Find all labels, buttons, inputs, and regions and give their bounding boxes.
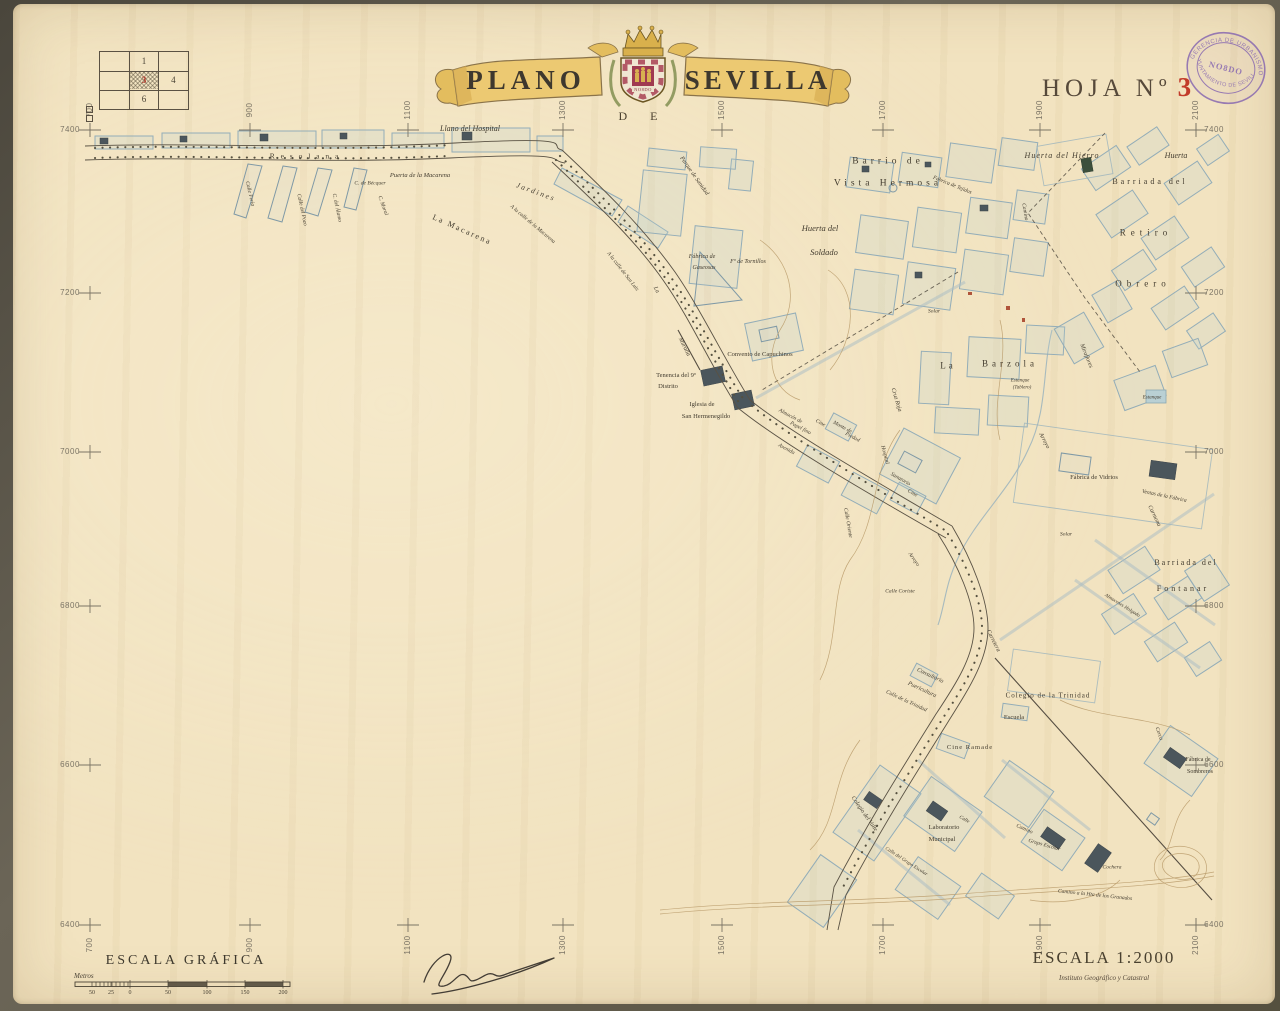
index-grid-cell: 1 <box>129 57 158 66</box>
institute-credit: Instituto Geográfico y Catastral <box>1059 974 1149 982</box>
index-grid-cell: 3 <box>129 76 158 85</box>
shield-motto: NO8DO <box>634 87 652 92</box>
banner-title-sevilla: SEVILLA <box>685 65 832 95</box>
scale-bar <box>70 978 310 994</box>
sheet-index-grid: 1346 <box>99 51 189 110</box>
urbanism-stamp: GERENCIA DE URBANISMO AYUNTAMIENTO DE SE… <box>1178 20 1274 116</box>
scale-number: 25 <box>108 990 114 996</box>
scale-number: 0 <box>129 990 132 996</box>
graphic-scale-title: ESCALA GRÁFICA <box>106 953 267 969</box>
sheet-label: HOJA Nº <box>1042 75 1172 102</box>
signature <box>408 938 598 998</box>
scale-number: 100 <box>203 990 212 996</box>
scale-number: 200 <box>279 990 288 996</box>
banner-shield: NO8DO <box>611 26 676 106</box>
scale-number: 50 <box>165 990 171 996</box>
scale-number: 50 <box>89 990 95 996</box>
banner-de: D E <box>619 109 668 123</box>
grid-ticks <box>0 0 1280 1011</box>
scale-number: 150 <box>241 990 250 996</box>
index-grid-cell: 6 <box>129 95 158 104</box>
scale-ratio-text: ESCALA 1:2000 <box>1033 948 1176 968</box>
sheet-number-title: HOJA Nº3 <box>1042 72 1191 103</box>
legend-square <box>86 115 93 122</box>
legend-square <box>86 106 93 113</box>
title-banner: NO8DO PLANO SEVILLA D E <box>428 8 858 126</box>
banner-title-plano: PLANO <box>466 65 586 95</box>
index-grid-cell: 4 <box>159 76 188 85</box>
